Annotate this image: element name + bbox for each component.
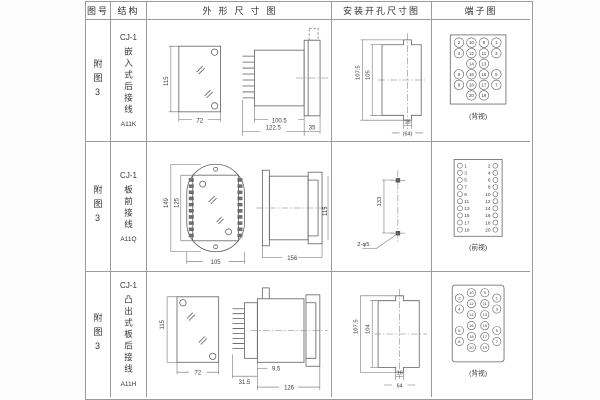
dim-body-depth: 100.5: [272, 118, 288, 124]
svg-text:11: 11: [482, 50, 487, 55]
svg-text:3: 3: [496, 306, 499, 311]
dim-inner-height: 104: [365, 323, 371, 334]
model-label: CJ-1: [120, 171, 137, 180]
svg-text:1: 1: [496, 295, 499, 300]
svg-text:2: 2: [488, 163, 491, 169]
dim-gap-depth: 9.5: [272, 366, 281, 372]
terminal-diagram-rear: 2 10 9 1 4 12 11 3 14 13 6 16 15 5 8 18 …: [433, 20, 529, 142]
svg-text:2: 2: [458, 40, 461, 45]
figure-cell-2: 附图3: [86, 142, 111, 272]
terminal-diagram-rear-stud: 10 9 2 1 12 11 4 3 14 13 16 15 6 5 18 17…: [433, 273, 529, 397]
header-structure: 结构: [111, 2, 147, 20]
structure-code: A11H: [121, 381, 137, 388]
svg-text:12: 12: [469, 301, 474, 306]
structure-desc: 板前接线: [122, 185, 134, 231]
svg-text:6: 6: [458, 71, 461, 76]
figure-label: 附图3: [92, 313, 105, 356]
dim-side-length: 156: [287, 256, 298, 262]
structure-cell-3: CJ-1 凸出式板后接线 A11H: [111, 272, 147, 397]
dim-front-height: 115: [164, 76, 170, 86]
svg-text:18: 18: [485, 220, 491, 226]
header-mounting: 安装开孔尺寸图: [332, 2, 432, 20]
svg-text:11: 11: [483, 301, 488, 306]
terminal-grid: 2 10 9 1 4 12 11 3 14 13 6 16 15 5 8 18 …: [454, 37, 501, 99]
dim-notch-width: 16: [404, 119, 410, 125]
spec-table: 图号 结构 外形尺寸图 安装开孔尺寸图 端子图 附图3 CJ-1 嵌入式后接线 …: [85, 1, 533, 400]
svg-text:10: 10: [469, 40, 474, 45]
svg-text:5: 5: [464, 178, 467, 184]
svg-text:14: 14: [485, 206, 491, 212]
svg-text:15: 15: [464, 213, 470, 219]
svg-text:20: 20: [469, 93, 474, 98]
mounting-drawing-a11h: 107.5 104 16 64: [333, 273, 431, 397]
dim-side-height: 115: [323, 206, 329, 216]
svg-text:16: 16: [469, 71, 474, 76]
svg-text:13: 13: [481, 61, 486, 66]
dim-stub-depth: 31.5: [239, 380, 251, 386]
structure-code: A11Q: [120, 236, 136, 243]
dim-cutout-width: (64): [402, 131, 412, 137]
svg-text:19: 19: [464, 227, 470, 233]
svg-text:9: 9: [483, 40, 486, 45]
glass-hatch: [187, 312, 207, 344]
svg-text:10: 10: [469, 290, 474, 295]
mounting-drawing-a11q: 133 2-φ5: [333, 142, 431, 271]
dim-hole-spacing: 133: [377, 196, 383, 207]
dim-front-height: 115: [160, 319, 166, 329]
svg-text:1: 1: [495, 40, 498, 45]
structure-desc: 嵌入式后接线: [122, 47, 134, 116]
svg-text:1: 1: [464, 163, 467, 169]
svg-text:12: 12: [485, 199, 491, 205]
svg-text:15: 15: [483, 323, 488, 328]
mounting-cell-2: 133 2-φ5: [332, 142, 432, 272]
terminal-cell-3: 10 9 2 1 12 11 4 3 14 13 16 15 6 5 18 17…: [432, 272, 530, 397]
dim-inner-height: 105: [365, 69, 371, 80]
terminal-grid: 1 2 3 4 5 6 7 8 9 10 11 12 13 14 15 16 1…: [457, 163, 498, 233]
mounting-cell-1: 107.5 105 16 (64): [332, 20, 432, 142]
svg-text:20: 20: [485, 227, 491, 233]
figure-label: 附图3: [92, 59, 105, 102]
svg-text:13: 13: [464, 206, 470, 212]
svg-text:19: 19: [481, 93, 486, 98]
svg-text:4: 4: [458, 306, 461, 311]
outline-cell-3: 115 72 9.5 31.5 126: [147, 272, 332, 397]
svg-text:6: 6: [488, 178, 491, 184]
svg-text:9: 9: [484, 290, 487, 295]
svg-text:5: 5: [495, 71, 498, 76]
svg-text:19: 19: [483, 344, 488, 349]
mounting-drawing-a11k: 107.5 105 16 (64): [333, 20, 431, 142]
outline-cell-2: 149 125 105 156 115: [147, 142, 332, 272]
figure-label: 附图3: [92, 185, 105, 228]
svg-text:2: 2: [458, 295, 461, 300]
svg-text:9: 9: [464, 192, 467, 198]
svg-text:7: 7: [495, 82, 498, 87]
svg-text:7: 7: [464, 185, 467, 191]
svg-text:5: 5: [496, 327, 499, 332]
terminal-cell-2: 1 2 3 4 5 6 7 8 9 10 11 12 13 14 15 16 1…: [432, 142, 530, 272]
svg-text:7: 7: [496, 338, 499, 343]
svg-text:8: 8: [488, 185, 491, 191]
dim-outer-height: 107.5: [355, 64, 361, 79]
svg-text:17: 17: [464, 220, 470, 226]
svg-text:4: 4: [488, 171, 491, 177]
view-caption: (背视): [469, 368, 487, 377]
view-caption: (前视): [469, 243, 487, 252]
figure-cell-3: 附图3: [86, 272, 111, 397]
terminal-grid: 10 9 2 1 12 11 4 3 14 13 16 15 6 5 18 17…: [455, 288, 501, 351]
svg-text:8: 8: [458, 82, 461, 87]
model-label: CJ-1: [120, 281, 137, 290]
dim-cutout-width: 64: [396, 383, 402, 389]
dim-outer-height: 149: [164, 197, 170, 208]
dim-front-width: 72: [196, 118, 203, 124]
dim-outer-height: 107.5: [353, 318, 359, 333]
dim-front-width: 105: [211, 260, 222, 266]
hole-callout: 2-φ5: [357, 242, 370, 248]
terminal-pins: [242, 56, 254, 98]
svg-text:16: 16: [469, 323, 474, 328]
svg-text:4: 4: [458, 50, 461, 55]
structure-cell-1: CJ-1 嵌入式后接线 A11K: [111, 20, 147, 142]
svg-text:18: 18: [469, 333, 474, 338]
structure-cell-2: CJ-1 板前接线 A11Q: [111, 142, 147, 272]
svg-text:13: 13: [483, 312, 488, 317]
view-caption: (背视): [469, 111, 487, 120]
dim-notch-width: 16: [396, 370, 402, 376]
dim-front-width: 72: [195, 370, 202, 376]
svg-text:17: 17: [483, 333, 488, 338]
outline-drawing-a11q: 149 125 105 156 115: [147, 142, 331, 271]
svg-text:18: 18: [469, 82, 474, 87]
header-outline: 外形尺寸图: [147, 2, 332, 20]
header-figure: 图号: [86, 2, 111, 20]
glass-hatch: [209, 196, 224, 224]
svg-text:17: 17: [481, 82, 486, 87]
svg-text:20: 20: [469, 344, 474, 349]
outline-cell-1: 115 72 100.5 122.5 35: [147, 20, 332, 142]
terminal-cell-1: 2 10 9 1 4 12 11 3 14 13 6 16 15 5 8 18 …: [432, 20, 530, 142]
dim-inner-height: 125: [174, 197, 180, 208]
header-terminal: 端子图: [432, 2, 530, 20]
svg-text:14: 14: [469, 312, 474, 317]
mounting-cell-3: 107.5 104 16 64: [332, 272, 432, 397]
outline-drawing-a11k: 115 72 100.5 122.5 35: [147, 20, 331, 141]
svg-text:3: 3: [464, 171, 467, 177]
structure-desc: 凸出式板后接线: [122, 295, 134, 376]
terminal-pins: [233, 308, 245, 348]
svg-text:3: 3: [495, 50, 498, 55]
dim-flange-depth: 35: [309, 126, 316, 132]
svg-text:14: 14: [469, 61, 474, 66]
svg-text:8: 8: [458, 338, 461, 343]
svg-text:10: 10: [485, 192, 491, 198]
svg-text:16: 16: [485, 213, 491, 219]
outline-drawing-a11h: 115 72 9.5 31.5 126: [147, 273, 331, 397]
structure-code: A11K: [121, 121, 136, 128]
svg-text:12: 12: [469, 50, 474, 55]
terminal-diagram-front: 1 2 3 4 5 6 7 8 9 10 11 12 13 14 15 16 1…: [433, 142, 529, 271]
dim-total-depth: 122.5: [266, 126, 282, 132]
figure-cell-1: 附图3: [86, 20, 111, 142]
model-label: CJ-1: [120, 33, 137, 42]
glass-hatch: [197, 66, 213, 98]
svg-text:6: 6: [458, 327, 461, 332]
svg-text:15: 15: [481, 71, 486, 76]
svg-text:11: 11: [464, 199, 469, 205]
dim-body-depth: 126: [284, 385, 295, 391]
